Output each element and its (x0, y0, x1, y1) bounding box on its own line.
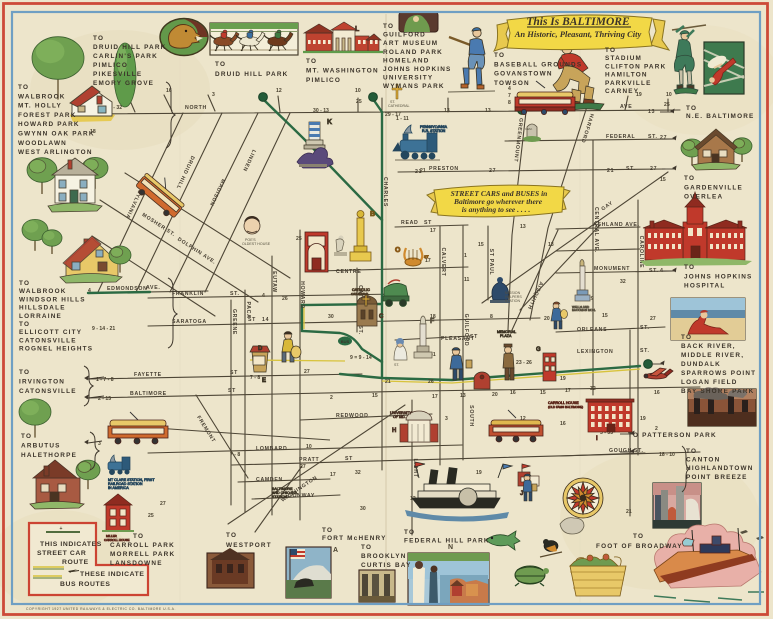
svg-text:16: 16 (510, 390, 516, 396)
svg-text:18 - 10: 18 - 10 (659, 452, 675, 458)
svg-text:26: 26 (282, 296, 288, 302)
svg-text:FAYETTE: FAYETTE (134, 372, 162, 378)
svg-text:IN AMERICA: IN AMERICA (108, 486, 129, 490)
svg-text:McCOMAS MON.: McCOMAS MON. (572, 308, 596, 312)
svg-text:MONUMENT: MONUMENT (594, 266, 630, 272)
svg-text:27: 27 (650, 316, 656, 322)
svg-text:ST.: ST. (640, 348, 650, 354)
svg-text:26: 26 (428, 379, 434, 385)
svg-text:ROLAND PARK: ROLAND PARK (383, 49, 443, 56)
svg-text:CURTIS BAY: CURTIS BAY (361, 562, 411, 569)
svg-text:N: N (448, 544, 453, 551)
svg-text:19: 19 (476, 470, 482, 476)
svg-text:13: 13 (520, 224, 526, 230)
svg-text:TO: TO (18, 84, 29, 91)
svg-text:MORRELL PARK: MORRELL PARK (110, 551, 175, 558)
svg-text:20: 20 (492, 392, 498, 398)
svg-text:15: 15 (372, 393, 378, 399)
svg-text:OVERLEA: OVERLEA (684, 194, 723, 201)
svg-text:STREET CAR: STREET CAR (37, 550, 86, 557)
svg-text:PRESTON: PRESTON (429, 166, 459, 172)
svg-text:ST.: ST. (649, 268, 659, 274)
svg-text:17: 17 (430, 228, 436, 234)
svg-text:HIGHLANDTOWN: HIGHLANDTOWN (686, 465, 754, 472)
svg-text:27: 27 (160, 501, 166, 507)
svg-text:30: 30 (328, 314, 334, 320)
svg-text:15: 15 (478, 242, 484, 248)
svg-text:F: F (430, 318, 435, 325)
svg-text:10: 10 (355, 88, 361, 94)
svg-text:TO: TO (133, 533, 144, 540)
svg-text:TO: TO (684, 175, 695, 182)
svg-text:15: 15 (660, 177, 666, 183)
svg-text:BAY SHORE PARK: BAY SHORE PARK (681, 388, 755, 395)
svg-text:K: K (327, 119, 332, 126)
svg-text:ARBUTUS: ARBUTUS (21, 443, 61, 450)
svg-text:THIS INDICATES: THIS INDICATES (40, 541, 102, 548)
svg-text:DRUID HILL PARK: DRUID HILL PARK (215, 71, 289, 78)
svg-text:3: 3 (212, 92, 215, 98)
svg-text:1: 1 (464, 253, 467, 259)
svg-text:21: 21 (607, 168, 614, 174)
svg-text:ST: ST (424, 255, 429, 259)
svg-text:BALTIMORE: BALTIMORE (130, 391, 167, 397)
svg-text:THESE INDICATE: THESE INDICATE (80, 571, 145, 578)
svg-text:CALVERT: CALVERT (440, 247, 446, 276)
svg-text:ST: ST (424, 220, 432, 226)
svg-text:19: 19 (640, 416, 646, 422)
svg-text:TO: TO (686, 105, 697, 112)
svg-text:FORT McHENRY: FORT McHENRY (322, 535, 387, 542)
svg-text:ST.: ST. (640, 325, 650, 331)
svg-text:DUNDALK: DUNDALK (681, 361, 721, 368)
svg-text:13: 13 (485, 108, 491, 114)
svg-text:25: 25 (664, 102, 670, 108)
svg-text:12: 12 (276, 88, 282, 94)
svg-text:HOWARD: HOWARD (299, 281, 305, 309)
svg-text:PLAZA: PLAZA (500, 334, 512, 338)
svg-text:21: 21 (626, 509, 632, 515)
svg-text:WEST ARLINGTON: WEST ARLINGTON (18, 149, 93, 156)
svg-text:TO: TO (19, 280, 30, 287)
svg-text:TO: TO (686, 448, 697, 455)
svg-text:LOGAN FIELD: LOGAN FIELD (681, 379, 738, 386)
svg-text:EMORY GROVE: EMORY GROVE (93, 80, 154, 87)
svg-text:ST.: ST. (230, 291, 240, 297)
svg-text:FRANKLIN: FRANKLIN (172, 291, 204, 297)
svg-text:ST: ST (230, 370, 238, 376)
svg-text:CATONSVILLE: CATONSVILLE (19, 388, 77, 395)
svg-text:STATION: STATION (505, 299, 520, 303)
svg-text:8: 8 (490, 314, 493, 320)
svg-text:10: 10 (306, 444, 312, 450)
svg-text:E: E (262, 378, 266, 384)
svg-text:TO: TO (306, 58, 317, 65)
svg-text:BUS: BUS (341, 339, 350, 344)
svg-text:FEDERAL: FEDERAL (606, 134, 636, 140)
svg-text:7 - 8: 7 - 8 (250, 375, 260, 381)
svg-text:25: 25 (148, 513, 154, 519)
svg-text:FOREST PARK: FOREST PARK (18, 112, 77, 119)
svg-text:13: 13 (444, 108, 450, 114)
svg-text:LANSDOWNE: LANSDOWNE (110, 560, 163, 567)
svg-text:CEM.: CEM. (525, 127, 533, 131)
svg-text:27: 27 (650, 166, 657, 172)
svg-text:ST: ST (228, 388, 236, 394)
svg-text:27: 27 (489, 168, 496, 174)
svg-text:ST: ST (345, 456, 353, 462)
svg-text:TOWSON: TOWSON (494, 80, 530, 87)
svg-text:ST.: ST. (648, 134, 658, 140)
svg-text:HOWARD PARK: HOWARD PARK (18, 121, 80, 128)
svg-text:17: 17 (565, 388, 571, 394)
svg-text:JOHNS HOPKINS: JOHNS HOPKINS (383, 66, 452, 73)
svg-text:TO: TO (93, 35, 104, 42)
svg-text:PIMLICO: PIMLICO (93, 62, 128, 69)
svg-text:STADIUM: STADIUM (605, 55, 642, 62)
svg-text:7: 7 (508, 93, 511, 99)
svg-text:1 - 11: 1 - 11 (396, 116, 409, 122)
svg-text:WOODLAWN: WOODLAWN (18, 140, 67, 147)
svg-text:SPARROWS POINT: SPARROWS POINT (681, 370, 756, 377)
svg-text:HALETHORPE: HALETHORPE (21, 452, 77, 459)
svg-text:PIMLICO: PIMLICO (306, 77, 341, 84)
svg-text:GREENE: GREENE (231, 309, 237, 335)
svg-text:8: 8 (508, 100, 511, 106)
svg-text:O: O (395, 247, 401, 254)
svg-text:(OLD FAMS BALTIMORE): (OLD FAMS BALTIMORE) (548, 405, 583, 409)
svg-text:ROGNEL HEIGHTS: ROGNEL HEIGHTS (19, 346, 93, 353)
svg-text:WYMANS PARK: WYMANS PARK (383, 83, 445, 90)
svg-text:15: 15 (602, 313, 608, 319)
svg-text:21: 21 (385, 379, 391, 385)
svg-text:4: 4 (88, 288, 91, 294)
svg-text:13: 13 (460, 393, 466, 399)
svg-text:7 - 8: 7 - 8 (230, 452, 240, 458)
svg-text:32: 32 (590, 386, 596, 392)
svg-text:LEXINGTON: LEXINGTON (577, 349, 613, 355)
svg-text:OLDEST HOUSE: OLDEST HOUSE (242, 242, 271, 246)
svg-text:TO: TO (322, 527, 333, 534)
svg-text:20: 20 (544, 316, 550, 322)
svg-text:16: 16 (654, 390, 660, 396)
svg-text:GOVANSTOWN: GOVANSTOWN (494, 71, 553, 78)
svg-text:TO: TO (383, 23, 394, 30)
svg-text:27: 27 (304, 369, 310, 375)
svg-text:BASEBALL GROUNDS: BASEBALL GROUNDS (494, 61, 582, 68)
svg-text:ST: ST (470, 334, 478, 340)
svg-text:G: G (536, 347, 541, 353)
svg-text:R.R. STATION: R.R. STATION (422, 129, 446, 133)
svg-text:10: 10 (666, 92, 672, 98)
svg-text:23 - 26: 23 - 26 (516, 360, 532, 366)
svg-text:TO: TO (494, 52, 505, 59)
svg-text:L: L (355, 26, 360, 33)
svg-text:TO: TO (404, 529, 415, 536)
svg-text:GOUGH: GOUGH (609, 448, 632, 454)
svg-text:IRVINGTON: IRVINGTON (19, 379, 65, 386)
svg-text:COPYRIGHT 1927 UNITED RAILWAYS: COPYRIGHT 1927 UNITED RAILWAYS & ELECTRI… (26, 607, 176, 611)
svg-text:D: D (258, 346, 263, 352)
svg-text:27: 27 (660, 135, 667, 141)
svg-text:DRUID HILL PARK: DRUID HILL PARK (93, 44, 167, 51)
svg-text:9 - 14 - 21: 9 - 14 - 21 (92, 326, 115, 332)
svg-text:MT. WASHINGTON: MT. WASHINGTON (306, 68, 379, 75)
svg-text:TO: TO (215, 61, 226, 68)
svg-text:SOUTH: SOUTH (468, 405, 474, 427)
svg-text:ORLEANS: ORLEANS (577, 327, 607, 333)
svg-text:LOMBARD: LOMBARD (256, 446, 287, 452)
svg-text:ROUTE: ROUTE (62, 559, 89, 566)
svg-text:ART MUSEUM: ART MUSEUM (383, 40, 438, 47)
svg-text:PRATT: PRATT (299, 457, 320, 463)
svg-text:TO: TO (681, 334, 692, 341)
svg-text:2: 2 (330, 395, 333, 401)
svg-text:HOSPITAL: HOSPITAL (684, 283, 725, 290)
svg-text:TO: TO (226, 532, 237, 539)
svg-text:H: H (392, 428, 396, 434)
svg-text:READ: READ (401, 220, 419, 226)
svg-text:TO: TO (605, 47, 616, 54)
svg-text:TO PATTERSON PARK: TO PATTERSON PARK (628, 432, 717, 439)
svg-text:25: 25 (356, 99, 362, 105)
svg-text:C: C (379, 314, 384, 320)
svg-text:ST PAUL: ST PAUL (488, 249, 494, 276)
svg-text:NORTH: NORTH (185, 105, 207, 111)
svg-text:UNIVERSITY: UNIVERSITY (383, 75, 433, 82)
svg-text:EUTAW: EUTAW (271, 271, 277, 293)
svg-text:CARROLL PARK: CARROLL PARK (110, 542, 175, 549)
svg-text:ASHLAND AVE.: ASHLAND AVE. (593, 222, 640, 228)
svg-text:LIGHT: LIGHT (412, 458, 418, 477)
svg-text:TO: TO (21, 433, 32, 440)
svg-text:TO: TO (684, 264, 695, 271)
svg-text:30: 30 (360, 506, 366, 512)
svg-text:GUILFORD: GUILFORD (383, 32, 426, 39)
svg-text:HILLSDALE: HILLSDALE (19, 305, 66, 312)
svg-text:21: 21 (420, 168, 426, 174)
svg-text:TO: TO (19, 369, 30, 376)
svg-text:17: 17 (432, 394, 438, 400)
svg-text:JOHNS HOPKINS: JOHNS HOPKINS (684, 273, 753, 280)
svg-text:CARNEY: CARNEY (605, 88, 639, 95)
svg-text:CANTON: CANTON (686, 457, 720, 464)
svg-text:32: 32 (355, 470, 361, 476)
svg-text:GWYNN OAK PARK: GWYNN OAK PARK (18, 131, 95, 138)
svg-text:16: 16 (560, 421, 566, 427)
svg-text:WALBROOK: WALBROOK (18, 93, 66, 100)
svg-text:14: 14 (262, 317, 269, 323)
svg-text:LORRAINE: LORRAINE (19, 313, 62, 320)
svg-text:HAMILTON: HAMILTON (605, 72, 648, 79)
svg-text:4: 4 (262, 293, 265, 299)
svg-text:An Historic, Pleasant, Thrivin: An Historic, Pleasant, Thriving City (514, 29, 642, 39)
svg-text:B: B (370, 211, 375, 218)
svg-text:13: 13 (548, 242, 554, 248)
svg-text:CATHEDRAL: CATHEDRAL (351, 292, 369, 296)
svg-text:11: 11 (464, 277, 470, 283)
svg-text:STATION: STATION (272, 495, 287, 499)
svg-text:BUS ROUTES: BUS ROUTES (60, 581, 111, 588)
svg-text:GUILFORD: GUILFORD (463, 314, 469, 347)
svg-text:N.E. BALTIMORE: N.E. BALTIMORE (686, 113, 755, 120)
svg-text:+: + (60, 526, 63, 532)
svg-text:GARDENVILLE: GARDENVILLE (684, 184, 743, 191)
svg-text:SARATOGA: SARATOGA (172, 319, 207, 325)
svg-text:ST.: ST. (634, 448, 644, 454)
svg-text:ELLICOTT CITY: ELLICOTT CITY (19, 329, 82, 336)
svg-text:TO: TO (19, 321, 30, 328)
svg-text:PIKESVILLE: PIKESVILLE (93, 71, 142, 78)
svg-text:CATHEDRAL: CATHEDRAL (388, 104, 410, 108)
svg-text:TO: TO (633, 533, 644, 540)
svg-text:9 = 9 - 14: 9 = 9 - 14 (350, 355, 372, 361)
svg-text:25: 25 (296, 236, 302, 242)
svg-text:32: 32 (620, 279, 626, 285)
svg-text:17: 17 (330, 472, 336, 478)
svg-text:This Is BALTIMORE: This Is BALTIMORE (526, 16, 630, 28)
svg-text:ST.: ST. (626, 166, 636, 172)
svg-text:AVE: AVE (620, 104, 632, 110)
svg-text:HOMELAND: HOMELAND (383, 57, 430, 64)
svg-text:ST.: ST. (394, 363, 399, 367)
svg-text:19: 19 (560, 376, 566, 382)
svg-text:15: 15 (540, 390, 546, 396)
svg-text:CENTRAL AVE.: CENTRAL AVE. (593, 207, 599, 253)
svg-text:MT. HOLLY: MT. HOLLY (18, 103, 62, 110)
svg-text:FOOT OF BROADWAY: FOOT OF BROADWAY (596, 543, 683, 550)
svg-text:WALBROOK: WALBROOK (19, 288, 67, 295)
svg-text:30 - 13: 30 - 13 (313, 108, 329, 114)
svg-text:BACK RIVER,: BACK RIVER, (681, 343, 736, 350)
svg-text:FEDERAL HILL PARK: FEDERAL HILL PARK (404, 538, 490, 545)
svg-text:EDMONDSON: EDMONDSON (107, 286, 148, 292)
svg-text:27: 27 (300, 464, 306, 470)
svg-text:A: A (333, 547, 338, 554)
svg-text:POINT BREEZE: POINT BREEZE (686, 474, 748, 481)
svg-text:PARKVILLE: PARKVILLE (605, 80, 652, 87)
svg-text:3: 3 (445, 416, 448, 422)
svg-text:REDWOOD: REDWOOD (336, 413, 369, 419)
svg-text:BROOKLYN: BROOKLYN (361, 553, 407, 560)
svg-text:is anything to see . . . .: is anything to see . . . . (462, 205, 531, 214)
svg-text:WESTPORT: WESTPORT (226, 542, 272, 549)
svg-text:CLIFTON PARK: CLIFTON PARK (605, 63, 666, 70)
svg-text:WINDSOR HILLS: WINDSOR HILLS (19, 296, 86, 303)
svg-text:CAMDEN: CAMDEN (256, 477, 283, 483)
svg-text:TO: TO (361, 544, 372, 551)
svg-text:MIDDLE RIVER,: MIDDLE RIVER, (681, 352, 744, 359)
svg-text:AVE.: AVE. (146, 285, 161, 291)
svg-text:PACA: PACA (245, 301, 251, 318)
svg-text:CARLIN'S PARK: CARLIN'S PARK (93, 53, 158, 60)
svg-text:13: 13 (648, 109, 655, 115)
svg-text:CHARLES: CHARLES (382, 177, 388, 207)
svg-text:CATONSVILLE: CATONSVILLE (19, 337, 77, 344)
svg-text:OF MD.: OF MD. (393, 415, 406, 419)
svg-text:CENTRE: CENTRE (336, 269, 362, 275)
